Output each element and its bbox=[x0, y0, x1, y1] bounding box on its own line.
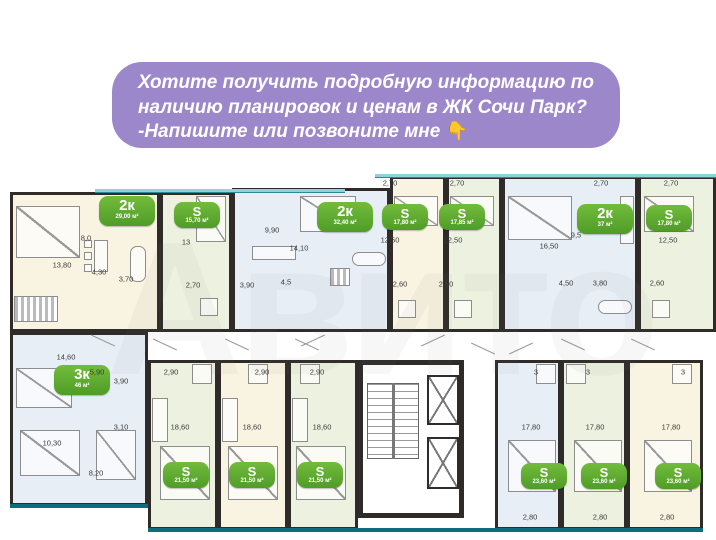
promo-banner: Хотите получить подробную информацию по … bbox=[112, 62, 620, 148]
banner-line-3: -Напишите или позвоните мне 👇 bbox=[138, 120, 620, 145]
table-icon bbox=[222, 398, 238, 442]
dimension-label: 13 bbox=[182, 238, 190, 247]
glazing-line bbox=[95, 189, 345, 193]
dimension-label: 2,70 bbox=[383, 179, 398, 188]
dimension-label: 18,60 bbox=[243, 423, 262, 432]
door-swing bbox=[421, 335, 445, 347]
unit-badge: S21,50 м² bbox=[229, 462, 275, 488]
dimension-label: 3 bbox=[681, 368, 685, 377]
unit-s-21-50-c bbox=[288, 360, 358, 530]
unit-s-21-50-b bbox=[218, 360, 288, 530]
dimension-label: 18,60 bbox=[313, 423, 332, 432]
dimension-label: 10,30 bbox=[43, 439, 62, 448]
dimension-label: 9,5 bbox=[571, 231, 581, 240]
dimension-label: 2,70 bbox=[186, 281, 201, 290]
dimension-label: 2,60 bbox=[650, 279, 665, 288]
shower-icon bbox=[192, 364, 212, 384]
table-icon bbox=[152, 398, 168, 442]
door-swing bbox=[561, 339, 585, 351]
dimension-label: 3,80 bbox=[593, 279, 608, 288]
dimension-label: 3 bbox=[534, 368, 538, 377]
dimension-label: 3,70 bbox=[119, 275, 134, 284]
kitchen-icon bbox=[14, 296, 58, 322]
dimension-label: 8,0 bbox=[81, 234, 91, 243]
dimension-label: 2,80 bbox=[593, 513, 608, 522]
dimension-label: 4,30 bbox=[92, 268, 107, 277]
dimension-label: 2,60 bbox=[439, 280, 454, 289]
unit-badge: S15,70 м² bbox=[174, 202, 220, 228]
banner-line-1: Хотите получить подробную информацию по bbox=[138, 71, 620, 96]
shower-icon bbox=[652, 300, 670, 318]
door-swing bbox=[295, 339, 319, 351]
dimension-label: 18,60 bbox=[171, 423, 190, 432]
unit-badge: S23,60 м² bbox=[521, 463, 567, 489]
dimension-label: 5,90 bbox=[90, 368, 105, 377]
table-icon bbox=[292, 398, 308, 442]
unit-badge: S21,50 м² bbox=[163, 462, 209, 488]
dimension-label: 17,80 bbox=[522, 423, 541, 432]
dimension-label: 4,5 bbox=[281, 278, 291, 287]
shower-icon bbox=[536, 364, 556, 384]
door-swing bbox=[225, 339, 249, 351]
dimension-label: 2,70 bbox=[594, 179, 609, 188]
dimension-label: 17,80 bbox=[662, 423, 681, 432]
unit-badge: S21,50 м² bbox=[297, 462, 343, 488]
bed-icon bbox=[16, 206, 80, 258]
dimension-label: 9,90 bbox=[265, 226, 280, 235]
glazing-line bbox=[148, 528, 703, 532]
unit-badge: S23,60 м² bbox=[655, 463, 701, 489]
elevator-icon bbox=[427, 375, 459, 425]
banner-line-2: наличию планировок и ценам в ЖК Сочи Пар… bbox=[138, 96, 620, 121]
shower-icon bbox=[398, 300, 416, 318]
banner-line-3-text: -Напишите или позвоните мне bbox=[138, 121, 440, 142]
dimension-label: 2,90 bbox=[164, 368, 179, 377]
door-swing bbox=[153, 339, 177, 351]
dimension-label: 14,10 bbox=[290, 244, 309, 253]
dimension-label: 17,80 bbox=[586, 423, 605, 432]
stair-core bbox=[358, 360, 464, 518]
dimension-label: 2,60 bbox=[393, 280, 408, 289]
dimension-label: 12,50 bbox=[659, 236, 678, 245]
dimension-label: 12,50 bbox=[444, 236, 463, 245]
dimension-label: 12,50 bbox=[381, 236, 400, 245]
shower-icon bbox=[566, 364, 586, 384]
unit-badge: S17,80 м² bbox=[382, 204, 428, 230]
dimension-label: 13,80 bbox=[53, 261, 72, 270]
dimension-label: 16,50 bbox=[540, 242, 559, 251]
shower-icon bbox=[454, 300, 472, 318]
dimension-label: 2,80 bbox=[523, 513, 538, 522]
chair-icon bbox=[84, 252, 92, 260]
door-swing bbox=[631, 339, 655, 351]
elevator-icon bbox=[427, 437, 459, 489]
bed-icon bbox=[508, 196, 572, 240]
door-swing bbox=[509, 343, 533, 355]
door-swing bbox=[301, 335, 325, 347]
unit-s-21-50-a bbox=[148, 360, 218, 530]
door-swing bbox=[471, 343, 495, 355]
unit-badge: 2к29,00 м² bbox=[99, 196, 155, 226]
bathtub-icon bbox=[352, 252, 386, 266]
dimension-label: 2,80 bbox=[660, 513, 675, 522]
glazing-line bbox=[375, 174, 716, 178]
shower-icon bbox=[200, 298, 218, 316]
stair-divider bbox=[392, 383, 395, 459]
kitchen-icon bbox=[330, 268, 350, 286]
dimension-label: 2,70 bbox=[664, 179, 679, 188]
bed-icon bbox=[20, 430, 80, 476]
unit-badge: S23,60 м² bbox=[581, 463, 627, 489]
dimension-label: 2,90 bbox=[310, 368, 325, 377]
dimension-label: 3 bbox=[586, 368, 590, 377]
dimension-label: 4,50 bbox=[559, 279, 574, 288]
dimension-label: 3,10 bbox=[114, 423, 129, 432]
dimension-label: 2,70 bbox=[450, 179, 465, 188]
bathtub-icon bbox=[598, 300, 632, 314]
dimension-label: 3,90 bbox=[240, 281, 255, 290]
pointing-down-icon: 👇 bbox=[446, 121, 468, 141]
dimension-label: 2,90 bbox=[255, 368, 270, 377]
unit-badge: S17,85 м² bbox=[439, 204, 485, 230]
listing-image: Авито bbox=[0, 0, 716, 540]
unit-badge: 2к37 м² bbox=[577, 204, 633, 234]
unit-badge: 2к32,40 м² bbox=[317, 202, 373, 232]
glazing-line bbox=[10, 504, 148, 508]
dimension-label: 14,60 bbox=[57, 353, 76, 362]
unit-badge: S17,80 м² bbox=[646, 205, 692, 231]
dimension-label: 8,20 bbox=[89, 469, 104, 478]
dimension-label: 3,90 bbox=[114, 377, 129, 386]
